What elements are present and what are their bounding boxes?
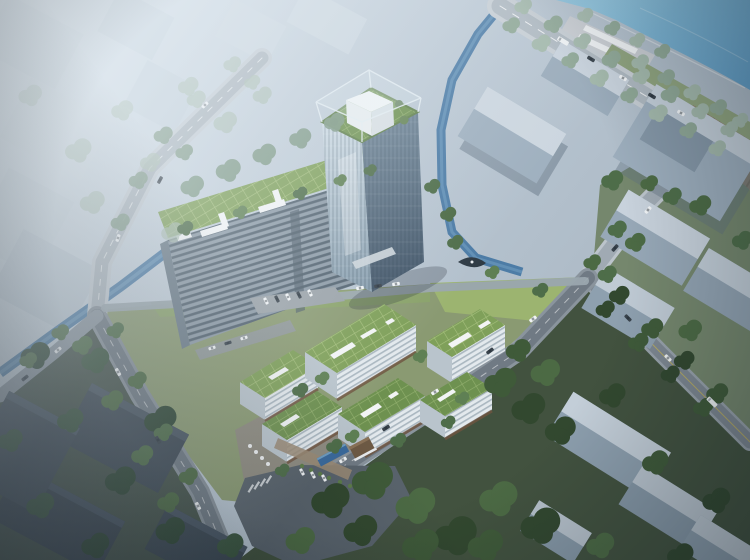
rendering-svg	[0, 0, 750, 560]
aerial-rendering-canvas	[0, 0, 750, 560]
corner-shade-overlay	[0, 0, 750, 560]
